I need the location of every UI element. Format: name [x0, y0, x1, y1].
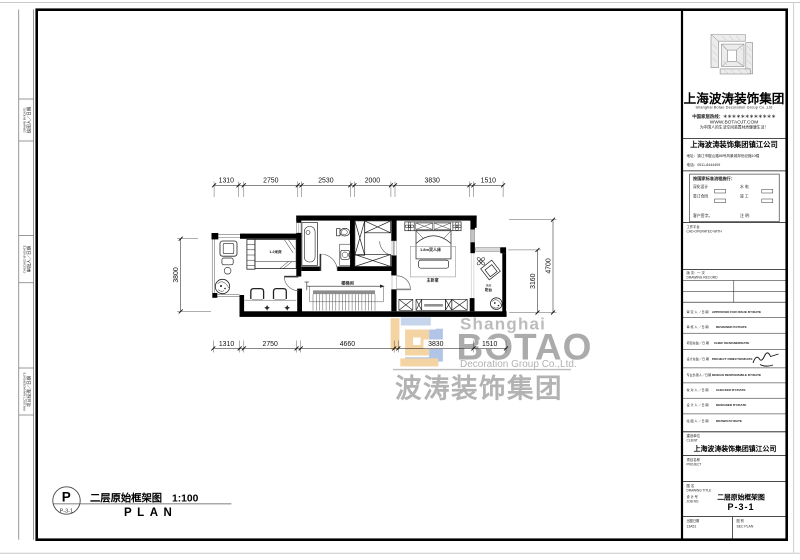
svg-text:2530: 2530 [318, 178, 333, 185]
svg-text:绘 图 人 ／日 期: 绘 图 人 ／日 期 [687, 418, 709, 423]
svg-text:1:100: 1:100 [172, 493, 199, 504]
svg-text:CLIENT: CLIENT [687, 438, 698, 442]
svg-text:上海波涛装饰集团镇江公司: 上海波涛装饰集团镇江公司 [694, 444, 777, 453]
svg-text:专业负责人／日期: 专业负责人／日期 [687, 372, 712, 377]
svg-text:PROJECT MANAGER/DATE: PROJECT MANAGER/DATE [22, 372, 26, 411]
svg-text:4660: 4660 [340, 341, 355, 348]
svg-text:二层原始框架图: 二层原始框架图 [717, 492, 765, 501]
svg-text:REVIEWED BY/DATE: REVIEWED BY/DATE [716, 325, 747, 329]
svg-text:主卧室: 主卧室 [427, 277, 439, 283]
svg-text:项目总监／日 期: 项目总监／日 期 [687, 340, 710, 345]
svg-text:设 计 人 ／日 期: 设 计 人 ／日 期 [687, 402, 709, 407]
svg-text:2750: 2750 [263, 341, 278, 348]
svg-text:CHIEF DESIGNER/DATE: CHIEF DESIGNER/DATE [714, 341, 749, 345]
svg-text:Decoration Group Co.,Ltd.: Decoration Group Co.,Ltd. [460, 359, 577, 370]
svg-text:SEC PLAN: SEC PLAN [737, 525, 754, 529]
svg-text:P: P [62, 490, 71, 505]
svg-text:1.8m双人床: 1.8m双人床 [420, 246, 441, 252]
svg-text:建设单位: 建设单位 [687, 433, 701, 438]
svg-text:3800: 3800 [173, 267, 180, 282]
svg-text:DESIGN RESPONSIBLE BY/DATE: DESIGN RESPONSIBLE BY/DATE [712, 373, 761, 377]
svg-text:客户签字。: 客户签字。 [693, 213, 712, 218]
svg-text:深化设计: 深化设计 [693, 184, 708, 189]
svg-text:二层原始框架图: 二层原始框架图 [90, 491, 162, 504]
svg-text:APPROVED FOR ISSUE BY/DATE: APPROVED FOR ISSUE BY/DATE [712, 310, 761, 314]
svg-text:设计总监／日 期: 设计总监／日 期 [687, 356, 710, 361]
svg-text:2000: 2000 [365, 178, 380, 185]
svg-text:出图日期: 出图日期 [687, 518, 700, 523]
svg-text:DRAWN BY/DATE: DRAWN BY/DATE [22, 108, 26, 133]
svg-text:1510: 1510 [482, 341, 497, 348]
svg-text:PROJECT: PROJECT [687, 462, 702, 466]
svg-text:图 名: 图 名 [687, 483, 695, 488]
svg-text:上海波涛装饰集团: 上海波涛装饰集团 [684, 91, 785, 106]
svg-text:1310: 1310 [219, 341, 234, 348]
svg-text:JOB NO.: JOB NO. [687, 500, 700, 504]
svg-text:为中国人的生活空间装置材质健康生活！: 为中国人的生活空间装置材质健康生活！ [700, 125, 768, 130]
svg-text:DRAWN BY/DATE: DRAWN BY/DATE [716, 419, 742, 423]
svg-text:绘图人／日期: 绘图人／日期 [26, 106, 33, 133]
svg-text:1.2米床: 1.2米床 [269, 249, 282, 254]
svg-text:3830: 3830 [428, 341, 443, 348]
svg-text:校 对 人 ／日 期: 校 对 人 ／日 期 [687, 387, 709, 392]
svg-text:版 次：一 次: 版 次：一 次 [687, 270, 706, 275]
svg-text:按国家标准流程施行：: 按国家标准流程施行： [693, 175, 735, 182]
svg-text:设 计 号: 设 计 号 [687, 494, 698, 499]
svg-text:13A51: 13A51 [687, 525, 697, 529]
svg-text:DESIGNED BY/DATE: DESIGNED BY/DATE [716, 403, 746, 407]
svg-text:CHECKED BY/DATE: CHECKED BY/DATE [716, 388, 746, 392]
svg-text:注 明:: 注 明: [740, 213, 750, 218]
svg-text:CAD-OPERATED WITH: CAD-OPERATED WITH [687, 229, 723, 233]
svg-text:竣 工: 竣 工 [740, 194, 749, 199]
svg-text:P-3-1: P-3-1 [727, 502, 754, 512]
svg-text:电话：0511-8444409: 电话：0511-8444409 [687, 162, 721, 167]
svg-text:2750: 2750 [263, 178, 278, 185]
svg-text:1510: 1510 [481, 178, 496, 185]
svg-text:Shanghai Botao Decoration Grou: Shanghai Botao Decoration Group Co.,Ltd [695, 106, 772, 110]
svg-text:DRAWING RECORD: DRAWING RECORD [687, 276, 719, 280]
svg-text:3160: 3160 [530, 273, 537, 288]
svg-text:水 电: 水 电 [740, 184, 749, 189]
svg-text:项目经理／日期: 项目经理／日期 [26, 376, 33, 407]
svg-text:1310: 1310 [219, 178, 234, 185]
svg-text:项目名称: 项目名称 [687, 457, 701, 462]
svg-text:工作平台: 工作平台 [687, 224, 701, 229]
svg-text:图 别: 图 别 [737, 518, 744, 523]
svg-text:P-3-1: P-3-1 [60, 509, 73, 515]
svg-text:3830: 3830 [425, 178, 440, 185]
svg-text:上海波涛装饰集团镇江公司: 上海波涛装饰集团镇江公司 [690, 140, 778, 149]
svg-text:CHECKED BY/DATE: CHECKED BY/DATE [22, 245, 26, 273]
svg-text:审 定 人 ／日 期: 审 定 人 ／日 期 [687, 309, 709, 314]
svg-text:中国家居热线：＊＊＊＊＊＊＊＊＊＊＊＊: 中国家居热线：＊＊＊＊＊＊＊＊＊＊＊＊ [692, 113, 775, 120]
svg-text:PLAN: PLAN [124, 507, 177, 519]
svg-text:PROJECT DIRECTOR/DATE: PROJECT DIRECTOR/DATE [712, 357, 753, 361]
svg-text:DRAWING TITLE: DRAWING TITLE [687, 488, 712, 492]
svg-text:地址：镇江市檀山路88号风景城邦世纪缩10幢: 地址：镇江市檀山路88号风景城邦世纪缩10幢 [687, 153, 760, 158]
svg-text:审批人／日期: 审批人／日期 [26, 245, 33, 272]
svg-text:审 核 人 ／日 期: 审 核 人 ／日 期 [687, 324, 709, 329]
svg-text:波涛装饰集团: 波涛装饰集团 [395, 374, 563, 404]
svg-text:签订合同: 签订合同 [693, 194, 708, 199]
svg-text:4700: 4700 [545, 258, 552, 273]
svg-text:阳台: 阳台 [485, 287, 493, 292]
svg-text:楼梯间: 楼梯间 [341, 280, 354, 287]
